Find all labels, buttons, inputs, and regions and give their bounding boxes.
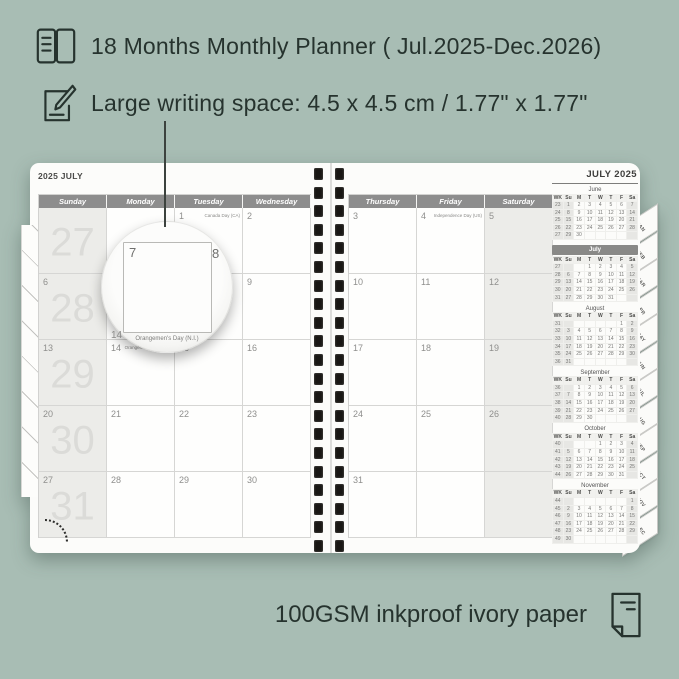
mini-calendar-header-cell: T bbox=[584, 433, 595, 441]
mini-calendar-cell bbox=[627, 535, 638, 543]
planner-product-image: 18 Months Monthly Planner ( Jul.2025-Dec… bbox=[0, 0, 679, 679]
spiral-hole bbox=[335, 205, 344, 217]
mini-calendar-cell: 24 bbox=[574, 528, 585, 536]
mini-calendar-header-cell: M bbox=[574, 313, 585, 321]
mini-calendar-cell: 33 bbox=[553, 335, 564, 343]
mini-calendar-header-cell: Sa bbox=[627, 433, 638, 441]
mini-calendar-cell bbox=[606, 535, 617, 543]
mini-calendar-title: June bbox=[552, 187, 638, 193]
mini-calendar-header-cell: Su bbox=[563, 377, 574, 385]
mini-calendar-cell: 27 bbox=[563, 294, 574, 302]
spiral-hole bbox=[335, 335, 344, 347]
mini-calendar-table: WKSuMTWTFSa23123456724891011121314251516… bbox=[552, 194, 638, 241]
mini-calendar-title: July bbox=[552, 245, 638, 255]
mini-calendar-cell: 1 bbox=[616, 320, 627, 328]
page-seam bbox=[330, 163, 332, 553]
mini-calendar-row: 4319202122232425 bbox=[553, 464, 638, 472]
mini-calendar-cell: 10 bbox=[563, 335, 574, 343]
mini-calendar-header-cell: M bbox=[574, 490, 585, 498]
mini-calendar-cell: 32 bbox=[553, 328, 564, 336]
mini-calendar-cell: 24 bbox=[616, 464, 627, 472]
mini-calendar-cell: 30 bbox=[584, 415, 595, 423]
mini-calendar-cell bbox=[563, 264, 574, 272]
mini-calendar-cell bbox=[584, 232, 595, 240]
date-label: 18 bbox=[421, 343, 431, 353]
spiral-hole bbox=[314, 373, 323, 385]
mini-calendar-row: 4823242526272829 bbox=[553, 528, 638, 536]
mini-calendar-cell: 18 bbox=[606, 400, 617, 408]
mini-calendar-header-cell: M bbox=[574, 194, 585, 202]
mini-calendar-row: 3310111213141516 bbox=[553, 335, 638, 343]
mini-calendar-cell bbox=[574, 535, 585, 543]
mini-calendar-header-cell: M bbox=[574, 377, 585, 385]
spiral-hole bbox=[335, 466, 344, 478]
mini-calendar-cell bbox=[606, 498, 617, 506]
week-number-watermark: 28 bbox=[39, 286, 106, 331]
mini-calendar-cell: 6 bbox=[574, 449, 585, 457]
mini-calendar-cell bbox=[563, 498, 574, 506]
calendar-cell: 2913 bbox=[39, 340, 107, 406]
mini-calendar-cell: 11 bbox=[574, 335, 585, 343]
mini-calendar-cell bbox=[584, 441, 595, 449]
mini-calendar-cell: 27 bbox=[595, 351, 606, 359]
mini-calendar-cell: 21 bbox=[574, 286, 585, 294]
date-label: 14 bbox=[111, 343, 121, 353]
mini-calendar-cell: 8 bbox=[584, 271, 595, 279]
mini-calendar-cell: 5 bbox=[616, 384, 627, 392]
mini-calendar-cell: 29 bbox=[595, 471, 606, 479]
mini-calendar-cell: 36 bbox=[553, 384, 564, 392]
date-label: 11 bbox=[421, 277, 430, 287]
mini-calendar-cell: 4 bbox=[574, 328, 585, 336]
mini-calendar-cell bbox=[584, 535, 595, 543]
mini-calendar-cell: 19 bbox=[616, 400, 627, 408]
mini-calendar-row: 44262728293031 bbox=[553, 471, 638, 479]
mini-calendar-cell: 5 bbox=[606, 202, 617, 210]
mini-calendar-cell: 28 bbox=[627, 224, 638, 232]
spiral-hole bbox=[335, 317, 344, 329]
feature-text-duration: 18 Months Monthly Planner ( Jul.2025-Dec… bbox=[91, 33, 601, 60]
date-label: 5 bbox=[489, 211, 494, 221]
date-label: 22 bbox=[179, 409, 189, 419]
mini-calendar-cell: 2 bbox=[606, 441, 617, 449]
mini-calendar-cell: 9 bbox=[563, 513, 574, 521]
day-header: Friday bbox=[417, 195, 485, 208]
mini-calendar-title: October bbox=[552, 426, 638, 432]
mini-calendar-cell: 10 bbox=[584, 209, 595, 217]
mini-calendar-cell: 18 bbox=[584, 520, 595, 528]
date-label: 24 bbox=[353, 409, 363, 419]
date-label: 3 bbox=[353, 211, 358, 221]
mini-calendar-cell: 18 bbox=[616, 279, 627, 287]
mini-calendar-header-cell: W bbox=[595, 313, 606, 321]
mini-calendar-cell: 11 bbox=[616, 271, 627, 279]
mini-calendar-cell: 26 bbox=[584, 351, 595, 359]
feature-text-paper: 100GSM inkproof ivory paper bbox=[275, 601, 587, 629]
mini-calendar-header-cell: Su bbox=[563, 256, 574, 264]
mini-calendar-cell: 27 bbox=[606, 528, 617, 536]
spiral-hole bbox=[314, 261, 323, 273]
mini-calendar-cell: 17 bbox=[606, 279, 617, 287]
mini-calendar-cell: 16 bbox=[574, 217, 585, 225]
mini-calendar-cell: 6 bbox=[606, 505, 617, 513]
spiral-hole bbox=[335, 168, 344, 180]
mini-calendar-cell: 29 bbox=[563, 232, 574, 240]
mini-calendar-cell: 14 bbox=[627, 209, 638, 217]
mini-calendar-header-cell: Su bbox=[563, 433, 574, 441]
mini-calendar-title: August bbox=[552, 306, 638, 312]
mini-calendar-cell: 1 bbox=[627, 498, 638, 506]
mini-calendar-cell: 17 bbox=[595, 400, 606, 408]
mini-calendar-cell bbox=[627, 471, 638, 479]
mini-calendar-cell bbox=[616, 294, 627, 302]
mini-calendar-row: 2913141516171819 bbox=[553, 279, 638, 287]
mini-calendar-cell bbox=[574, 358, 585, 366]
mini-calendar-row: 4930 bbox=[553, 535, 638, 543]
spiral-hole bbox=[314, 224, 323, 236]
mini-calendar-header-cell: Sa bbox=[627, 256, 638, 264]
mini-calendar-cell: 20 bbox=[595, 343, 606, 351]
mini-calendar-cell: 8 bbox=[627, 505, 638, 513]
mini-calendar-cell: 20 bbox=[616, 217, 627, 225]
mini-calendar-cell: 15 bbox=[584, 279, 595, 287]
mini-calendar-cell: 34 bbox=[553, 343, 564, 351]
calendar-cell: 286 bbox=[39, 274, 107, 340]
mini-calendar-cell: 1 bbox=[595, 441, 606, 449]
mini-calendar-cell: 2 bbox=[584, 384, 595, 392]
holiday-label: Canada Day (CA) bbox=[204, 213, 240, 218]
mini-calendar-cell: 17 bbox=[563, 343, 574, 351]
mini-calendar-cell: 10 bbox=[616, 449, 627, 457]
mini-calendar-cell: 3 bbox=[574, 505, 585, 513]
spiral-hole bbox=[314, 484, 323, 496]
mini-calendar-cell bbox=[627, 415, 638, 423]
writing-space-outline bbox=[123, 242, 212, 333]
spiral-hole bbox=[314, 205, 323, 217]
mini-calendar-cell: 22 bbox=[595, 464, 606, 472]
mini-calendar-cell: 24 bbox=[584, 224, 595, 232]
spiral-hole bbox=[335, 242, 344, 254]
mini-calendar-cell: 10 bbox=[574, 513, 585, 521]
mini-calendar-row: 3417181920212223 bbox=[553, 343, 638, 351]
calendar-cell: 21 bbox=[107, 406, 175, 472]
spiral-hole bbox=[335, 540, 344, 552]
mini-calendar-cell: 24 bbox=[563, 351, 574, 359]
mini-calendar-cell: 14 bbox=[563, 400, 574, 408]
mini-calendar-cell bbox=[606, 358, 617, 366]
callout-pointer-line bbox=[164, 121, 166, 227]
mini-calendar-row: 3524252627282930 bbox=[553, 351, 638, 359]
mini-calendar-cell: 31 bbox=[553, 320, 564, 328]
spiral-hole bbox=[335, 354, 344, 366]
mini-calendar-cell: 3 bbox=[595, 384, 606, 392]
mini-calendar-cell: 4 bbox=[595, 202, 606, 210]
mini-calendar-cell: 6 bbox=[563, 271, 574, 279]
mini-calendar-cell bbox=[574, 320, 585, 328]
spiral-hole bbox=[335, 224, 344, 236]
mini-calendar-cell bbox=[595, 535, 606, 543]
left-page-title: 2025 JULY bbox=[38, 171, 83, 181]
mini-calendar-cell: 18 bbox=[574, 343, 585, 351]
spiral-hole bbox=[314, 317, 323, 329]
mini-calendar-cell: 25 bbox=[584, 528, 595, 536]
mini-calendar-cell: 28 bbox=[563, 415, 574, 423]
mini-calendar-cell: 19 bbox=[606, 217, 617, 225]
mini-calendar-cell: 19 bbox=[627, 279, 638, 287]
date-label: 16 bbox=[247, 343, 257, 353]
date-label: 31 bbox=[353, 475, 363, 485]
mini-calendar-cell: 9 bbox=[595, 271, 606, 279]
date-label: 2 bbox=[247, 211, 252, 221]
mini-calendar-cell bbox=[616, 535, 627, 543]
mini-calendar-cell: 28 bbox=[616, 528, 627, 536]
mini-calendar-cell: 22 bbox=[616, 343, 627, 351]
mini-calendar-cell: 4 bbox=[627, 441, 638, 449]
spiral-hole bbox=[314, 242, 323, 254]
mini-calendar-cell: 40 bbox=[553, 415, 564, 423]
mini-calendar-cell: 31 bbox=[563, 358, 574, 366]
mini-calendar-cell: 8 bbox=[563, 209, 574, 217]
pencil-note-icon bbox=[40, 82, 78, 124]
mini-calendar-cell: 2 bbox=[595, 264, 606, 272]
mini-calendar-cell: 3 bbox=[584, 202, 595, 210]
mini-calendar-cell bbox=[595, 415, 606, 423]
mini-calendar-cell bbox=[606, 232, 617, 240]
mini-calendar-cell: 13 bbox=[574, 456, 585, 464]
spiral-hole bbox=[335, 298, 344, 310]
mini-calendar-cell: 29 bbox=[553, 279, 564, 287]
mini-calendar-cell: 12 bbox=[584, 335, 595, 343]
mini-calendar-cell: 10 bbox=[606, 271, 617, 279]
mini-calendar-header-cell: Su bbox=[563, 194, 574, 202]
mini-calendar-cell: 7 bbox=[616, 505, 627, 513]
mini-calendar-row: 312728293031 bbox=[553, 294, 638, 302]
spiral-hole bbox=[335, 428, 344, 440]
spiral-hole bbox=[314, 521, 323, 533]
sidebar-underline bbox=[552, 183, 638, 184]
mini-calendar-cell: 29 bbox=[627, 528, 638, 536]
mini-calendar-header-cell: Sa bbox=[627, 313, 638, 321]
mini-calendar-cell: 11 bbox=[627, 449, 638, 457]
day-header: Sunday bbox=[39, 195, 107, 208]
mini-calendar-table: WKSuMTWTFSa31123234567893310111213141516… bbox=[552, 312, 638, 366]
mini-calendar-cell bbox=[584, 358, 595, 366]
mini-calendar-header-cell: T bbox=[584, 256, 595, 264]
mini-calendar-cell: 41 bbox=[553, 449, 564, 457]
date-label: 19 bbox=[489, 343, 499, 353]
magnified-holiday-label: Orangemen's Day (N.I.) bbox=[102, 336, 232, 342]
mini-calendar-cell: 26 bbox=[563, 471, 574, 479]
mini-calendar-cell: 7 bbox=[606, 328, 617, 336]
date-label: 27 bbox=[43, 475, 53, 485]
calendar-cell: 30 bbox=[243, 472, 311, 538]
spiral-hole bbox=[314, 410, 323, 422]
mini-calendar-header-cell: W bbox=[595, 194, 606, 202]
spiral-hole bbox=[314, 187, 323, 199]
mini-calendar-row: 3631 bbox=[553, 358, 638, 366]
mini-calendar-header-cell: F bbox=[616, 433, 627, 441]
mini-calendar-header-cell: W bbox=[595, 377, 606, 385]
mini-calendar-cell: 15 bbox=[627, 513, 638, 521]
mini-calendar: JuneWKSuMTWTFSa2312345672489101112131425… bbox=[552, 186, 638, 240]
mini-calendar-header-cell: T bbox=[606, 490, 617, 498]
date-label: 4 bbox=[421, 211, 426, 221]
mini-calendar-row: 441 bbox=[553, 498, 638, 506]
calendar-cell: 12 bbox=[485, 274, 553, 340]
calendar-cell: 10 bbox=[349, 274, 417, 340]
mini-calendar-cell: 16 bbox=[606, 456, 617, 464]
mini-calendar-row: 469101112131415 bbox=[553, 513, 638, 521]
mini-calendar-cell: 25 bbox=[606, 407, 617, 415]
mini-calendar-cell bbox=[606, 415, 617, 423]
mini-calendar-cell: 17 bbox=[616, 456, 627, 464]
spiral-hole bbox=[314, 391, 323, 403]
spiral-hole bbox=[314, 298, 323, 310]
mini-calendar-cell: 23 bbox=[553, 202, 564, 210]
mini-calendar-sidebar: JuneWKSuMTWTFSa2312345672489101112131425… bbox=[552, 186, 638, 544]
feature-text-writing-space: Large writing space: 4.5 x 4.5 cm / 1.77… bbox=[91, 90, 588, 117]
calendar-cell: 19 bbox=[485, 340, 553, 406]
spiral-hole bbox=[335, 261, 344, 273]
mini-calendar-cell bbox=[616, 498, 627, 506]
mini-calendar-cell: 30 bbox=[595, 294, 606, 302]
mini-calendar-cell: 45 bbox=[553, 505, 564, 513]
mini-calendar-cell: 22 bbox=[627, 520, 638, 528]
calendar-cell: 9 bbox=[243, 274, 311, 340]
mini-calendar-row: 24891011121314 bbox=[553, 209, 638, 217]
mini-calendar-cell: 26 bbox=[553, 224, 564, 232]
mini-calendar-cell: 22 bbox=[574, 407, 585, 415]
mini-calendar-cell: 31 bbox=[606, 294, 617, 302]
spiral-hole bbox=[335, 410, 344, 422]
mini-calendar-header-cell: WK bbox=[553, 377, 564, 385]
mini-calendar-row: 2712345 bbox=[553, 264, 638, 272]
mini-calendar-cell: 12 bbox=[595, 513, 606, 521]
mini-calendar-cell: 12 bbox=[606, 209, 617, 217]
spiral-hole bbox=[335, 373, 344, 385]
mini-calendar-header-cell: WK bbox=[553, 256, 564, 264]
mini-calendar-cell: 23 bbox=[574, 224, 585, 232]
mini-calendar-cell: 28 bbox=[606, 351, 617, 359]
mini-calendar-cell: 14 bbox=[616, 513, 627, 521]
mini-calendar-row: 40282930 bbox=[553, 415, 638, 423]
mini-calendar-row: 3921222324252627 bbox=[553, 407, 638, 415]
mini-calendar-cell: 37 bbox=[553, 392, 564, 400]
mini-calendar-cell: 21 bbox=[606, 343, 617, 351]
mini-calendar-cell bbox=[606, 320, 617, 328]
spiral-hole bbox=[314, 335, 323, 347]
mini-calendar-cell bbox=[595, 358, 606, 366]
mini-calendar-header-cell: T bbox=[584, 490, 595, 498]
mini-calendar-cell: 21 bbox=[584, 464, 595, 472]
mini-calendar-cell: 1 bbox=[584, 264, 595, 272]
mini-calendar-header-row: WKSuMTWTFSa bbox=[553, 256, 638, 264]
spiral-hole bbox=[314, 503, 323, 515]
mini-calendar-header-cell: F bbox=[616, 194, 627, 202]
spiral-hole bbox=[314, 428, 323, 440]
mini-calendar-header-cell: T bbox=[606, 377, 617, 385]
mini-calendar-header-cell: M bbox=[574, 433, 585, 441]
mini-calendar-cell: 2 bbox=[574, 202, 585, 210]
mini-calendar-cell: 27 bbox=[616, 224, 627, 232]
mini-calendar-table: WKSuMTWTFSa36123456377891011121338141516… bbox=[552, 376, 638, 423]
mini-calendar-cell: 3 bbox=[563, 328, 574, 336]
calendar-cell: 27 bbox=[39, 208, 107, 274]
date-label: 26 bbox=[489, 409, 499, 419]
feature-line-writing-space: Large writing space: 4.5 x 4.5 cm / 1.77… bbox=[40, 82, 588, 124]
mini-calendar-cell: 4 bbox=[606, 384, 617, 392]
week-number-watermark: 27 bbox=[39, 220, 106, 265]
mini-calendar-cell: 2 bbox=[563, 505, 574, 513]
mini-calendar-row: 2515161718192021 bbox=[553, 217, 638, 225]
magnified-date: 7 bbox=[129, 245, 136, 260]
mini-calendar-cell: 47 bbox=[553, 520, 564, 528]
dotted-corner-arc-left bbox=[22, 519, 68, 565]
mini-calendar-cell: 13 bbox=[606, 513, 617, 521]
mini-calendar-cell: 26 bbox=[606, 224, 617, 232]
mini-calendar-cell: 8 bbox=[616, 328, 627, 336]
mini-calendar-cell bbox=[616, 232, 627, 240]
calendar-cell: 2 bbox=[243, 208, 311, 274]
mini-calendar-header-row: WKSuMTWTFSa bbox=[553, 377, 638, 385]
mini-calendar-cell: 30 bbox=[606, 471, 617, 479]
mini-calendar-cell bbox=[627, 232, 638, 240]
mini-calendar-cell bbox=[563, 320, 574, 328]
magnifier-circle: 7 8 14 Orangemen's Day (N.I.) bbox=[101, 221, 233, 353]
mini-calendar-row: 3020212223242526 bbox=[553, 286, 638, 294]
mini-calendar-cell: 43 bbox=[553, 464, 564, 472]
mini-calendar-cell: 5 bbox=[595, 505, 606, 513]
mini-calendar-header-cell: T bbox=[584, 377, 595, 385]
mini-calendar-cell: 13 bbox=[627, 392, 638, 400]
mini-calendar-cell: 20 bbox=[606, 520, 617, 528]
holiday-label: Independence Day (US) bbox=[434, 213, 482, 218]
mini-calendar-row: 401234 bbox=[553, 441, 638, 449]
calendar-cell: 17 bbox=[349, 340, 417, 406]
mini-calendar-cell bbox=[584, 320, 595, 328]
mini-calendar-cell bbox=[574, 498, 585, 506]
mini-calendar-cell: 19 bbox=[563, 464, 574, 472]
spiral-hole bbox=[335, 187, 344, 199]
mini-calendar-cell: 40 bbox=[553, 441, 564, 449]
mini-calendar-cell: 49 bbox=[553, 535, 564, 543]
mini-calendar-cell: 29 bbox=[616, 351, 627, 359]
mini-calendar-cell: 48 bbox=[553, 528, 564, 536]
mini-calendar-cell: 23 bbox=[595, 286, 606, 294]
mini-calendar-cell: 24 bbox=[606, 286, 617, 294]
mini-calendar-cell: 7 bbox=[563, 392, 574, 400]
date-label: 10 bbox=[353, 277, 363, 287]
mini-calendar-header-cell: T bbox=[606, 256, 617, 264]
calendar-cell: 23 bbox=[243, 406, 311, 472]
spiral-hole bbox=[314, 466, 323, 478]
mini-calendar-cell: 13 bbox=[616, 209, 627, 217]
mini-calendar-cell: 20 bbox=[563, 286, 574, 294]
spiral-hole bbox=[335, 391, 344, 403]
date-label: 17 bbox=[353, 343, 363, 353]
mini-calendar-cell bbox=[595, 232, 606, 240]
date-label: 25 bbox=[421, 409, 431, 419]
mini-calendar-cell: 4 bbox=[584, 505, 595, 513]
mini-calendar-row: 3814151617181920 bbox=[553, 400, 638, 408]
mini-calendar-cell: 11 bbox=[584, 513, 595, 521]
mini-calendar-cell: 4 bbox=[616, 264, 627, 272]
date-label: 12 bbox=[489, 277, 499, 287]
mini-calendar-cell: 46 bbox=[553, 513, 564, 521]
calendar-cell: 26 bbox=[485, 406, 553, 472]
mini-calendar-cell: 5 bbox=[627, 264, 638, 272]
mini-calendar-cell: 22 bbox=[563, 224, 574, 232]
